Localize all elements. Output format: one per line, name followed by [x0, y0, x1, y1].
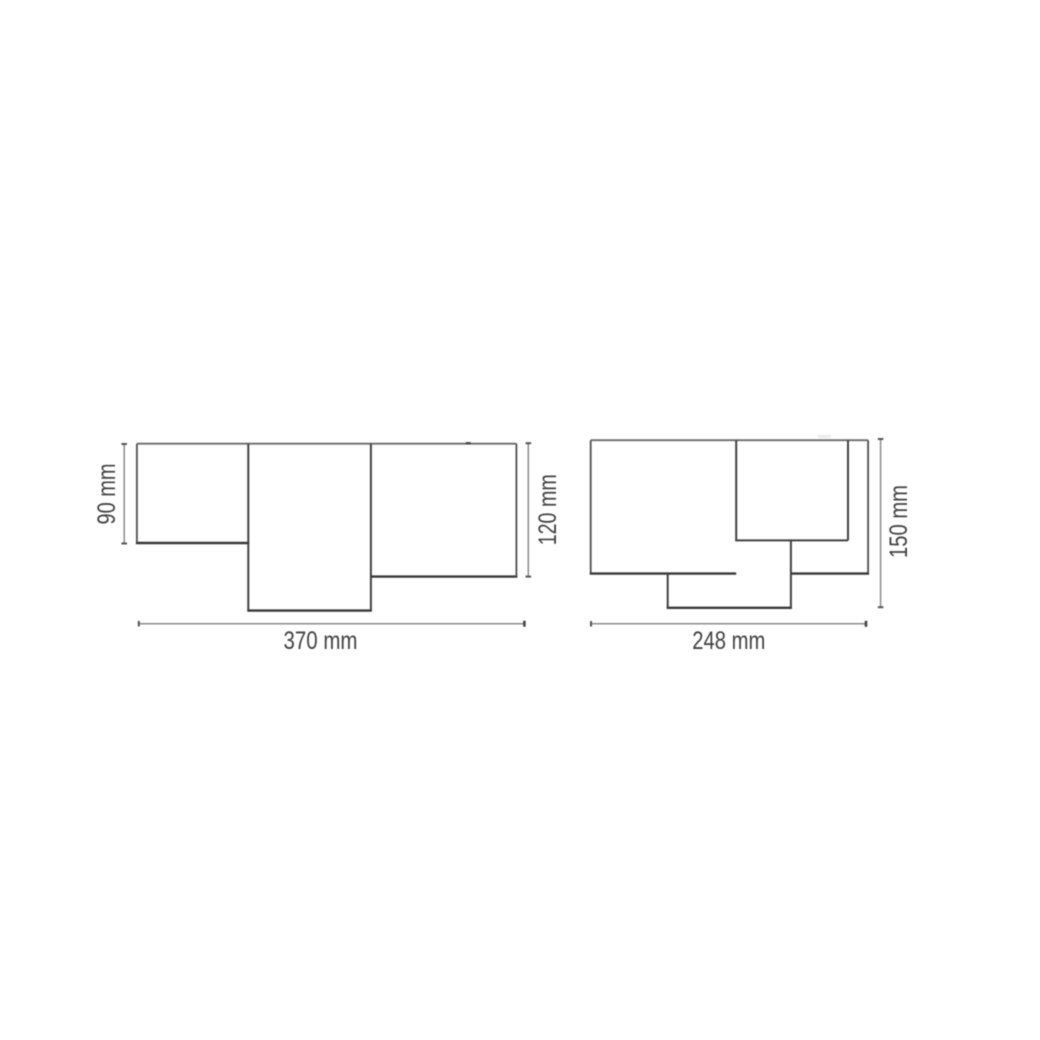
svg-text:90 mm: 90 mm: [93, 464, 121, 525]
svg-text:370 mm: 370 mm: [284, 627, 358, 655]
svg-text:120 mm: 120 mm: [534, 474, 562, 545]
svg-text:150 mm: 150 mm: [885, 485, 913, 558]
svg-text:248 mm: 248 mm: [692, 627, 765, 655]
